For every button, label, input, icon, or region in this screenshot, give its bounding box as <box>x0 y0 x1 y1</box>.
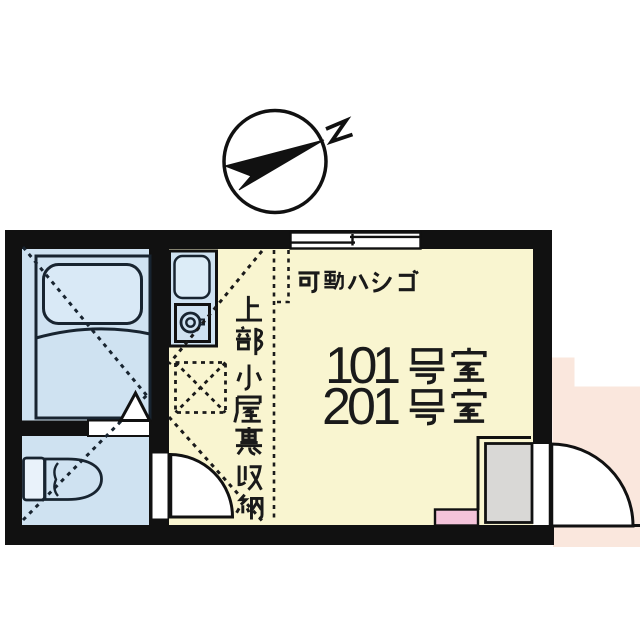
svg-text:201: 201 <box>322 378 401 436</box>
